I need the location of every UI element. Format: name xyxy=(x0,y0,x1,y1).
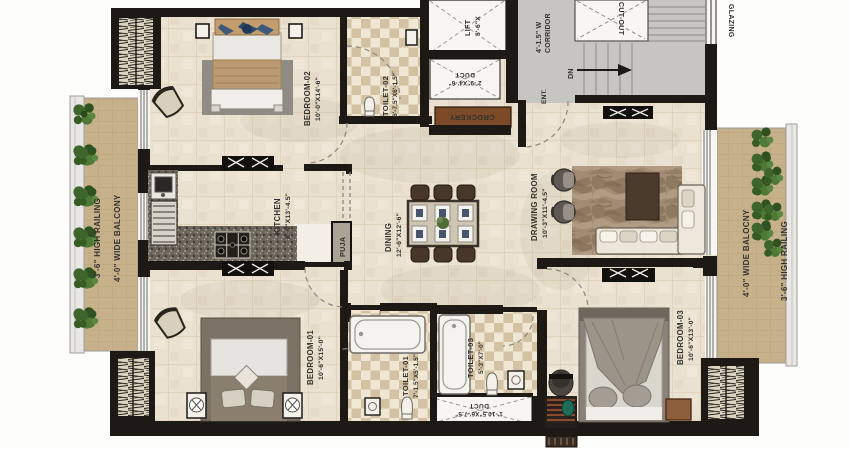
svg-text:6'-0"X13'-4.5": 6'-0"X13'-4.5" xyxy=(285,193,292,239)
svg-text:3'-6" HIGH RAILING: 3'-6" HIGH RAILING xyxy=(780,221,789,301)
svg-text:TOILET-02: TOILET-02 xyxy=(381,76,390,116)
svg-text:1'-10.5"X6'-7.5": 1'-10.5"X6'-7.5" xyxy=(455,410,503,417)
svg-text:GLAZING: GLAZING xyxy=(727,4,734,38)
svg-text:10'-6"X13'-0": 10'-6"X13'-0" xyxy=(688,317,695,361)
svg-text:TOILET-01: TOILET-01 xyxy=(401,355,410,396)
svg-text:CUT-OUT: CUT-OUT xyxy=(617,2,624,36)
svg-text:5'-3"X7'-0": 5'-3"X7'-0" xyxy=(478,341,485,374)
svg-text:12'-6"X12'-6": 12'-6"X12'-6" xyxy=(396,213,403,257)
svg-text:2'-9"X4'-6": 2'-9"X4'-6" xyxy=(448,79,481,86)
svg-text:DN: DN xyxy=(566,69,575,79)
svg-text:BEDROOM-03: BEDROOM-03 xyxy=(676,310,685,365)
svg-text:CORRIDOR: CORRIDOR xyxy=(545,13,552,53)
svg-text:LIFT: LIFT xyxy=(463,19,472,36)
svg-text:10'-3"X11'-4.5": 10'-3"X11'-4.5" xyxy=(542,188,549,238)
svg-text:4'-0" WIDE BALOCNY: 4'-0" WIDE BALOCNY xyxy=(742,209,751,297)
svg-text:ENT.: ENT. xyxy=(541,89,548,104)
svg-text:TOILET-03: TOILET-03 xyxy=(466,338,475,378)
svg-text:6'-7.5"X6'-1.5": 6'-7.5"X6'-1.5" xyxy=(392,73,399,117)
svg-text:DRAWING ROOM: DRAWING ROOM xyxy=(530,173,539,241)
svg-text:PUJA: PUJA xyxy=(338,237,347,257)
svg-text:DUCT: DUCT xyxy=(469,402,489,409)
svg-text:5'-6"X: 5'-6"X xyxy=(475,16,482,36)
svg-text:DUCT: DUCT xyxy=(455,71,475,78)
svg-text:DINING: DINING xyxy=(384,223,393,252)
svg-text:3'-6" HIGH RAILING: 3'-6" HIGH RAILING xyxy=(93,198,102,278)
svg-text:7'-1.5"X5'-1.5": 7'-1.5"X5'-1.5" xyxy=(413,354,420,398)
svg-text:KITCHEN: KITCHEN xyxy=(273,198,282,235)
svg-text:4'-0" WIDE BALCONY: 4'-0" WIDE BALCONY xyxy=(113,194,122,282)
svg-text:BEDROOM-02: BEDROOM-02 xyxy=(303,71,312,126)
svg-text:10'-6"X15'-0": 10'-6"X15'-0" xyxy=(318,336,325,380)
svg-text:4'-1.5" W: 4'-1.5" W xyxy=(536,22,543,53)
svg-text:10'-0"X14'-6": 10'-0"X14'-6" xyxy=(315,77,322,121)
svg-text:CROCKERY: CROCKERY xyxy=(449,113,494,122)
svg-text:BEDROOM-01: BEDROOM-01 xyxy=(306,330,315,385)
